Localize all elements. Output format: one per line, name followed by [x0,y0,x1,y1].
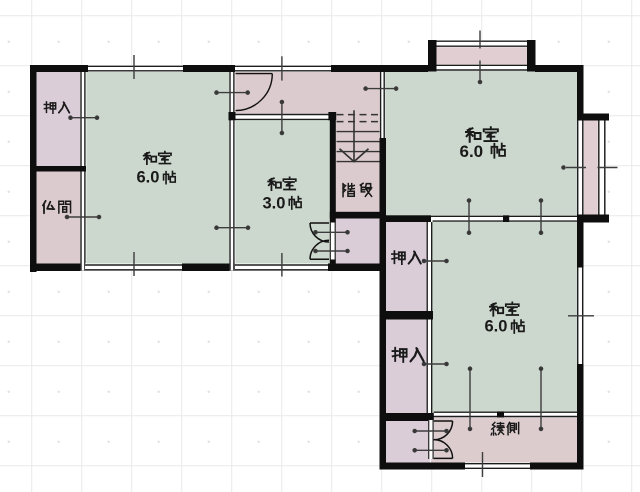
svg-text:6.0: 6.0 [485,318,508,336]
svg-text:6.0: 6.0 [460,142,484,161]
svg-text:6.0: 6.0 [137,169,160,187]
svg-text:3.0: 3.0 [263,194,286,212]
